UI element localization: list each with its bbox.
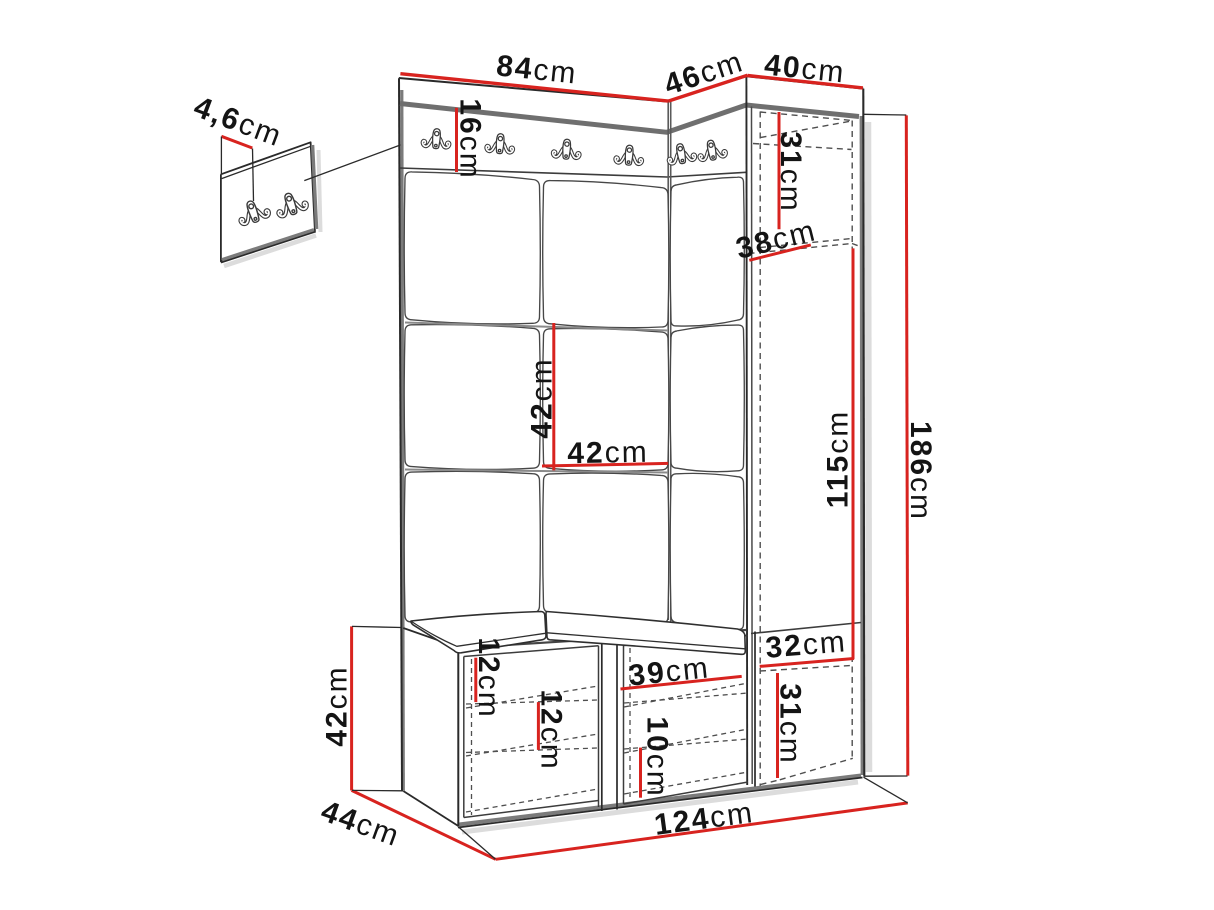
svg-text:10cm: 10cm xyxy=(641,716,674,797)
svg-text:42cm: 42cm xyxy=(321,665,354,746)
svg-text:186cm: 186cm xyxy=(904,421,937,521)
svg-text:16cm: 16cm xyxy=(454,98,487,179)
svg-text:31cm: 31cm xyxy=(774,131,807,212)
svg-text:115cm: 115cm xyxy=(822,410,855,508)
svg-text:42cm: 42cm xyxy=(567,436,649,470)
svg-text:42cm: 42cm xyxy=(526,357,559,438)
svg-text:12cm: 12cm xyxy=(472,637,505,718)
svg-text:32cm: 32cm xyxy=(764,625,848,665)
svg-text:12cm: 12cm xyxy=(535,689,568,770)
svg-text:31cm: 31cm xyxy=(774,683,807,764)
